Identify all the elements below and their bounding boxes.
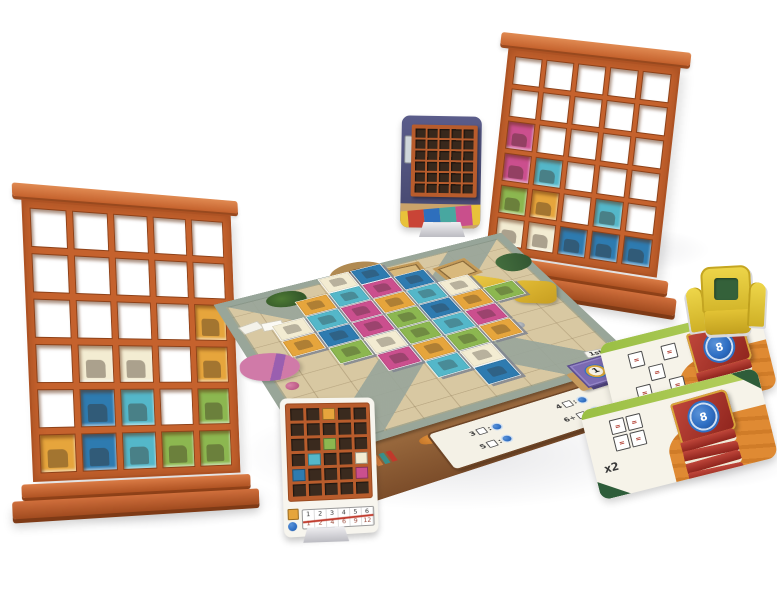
rosette-icon	[491, 423, 503, 430]
shelf-slot	[325, 483, 338, 496]
goal-tile-plants	[355, 467, 368, 479]
shelf-slot	[439, 151, 449, 160]
empty-slot	[34, 300, 70, 338]
tile-cats	[200, 431, 231, 466]
shelf-slot	[439, 140, 449, 149]
rug-stripe	[471, 204, 480, 225]
empty-slot	[510, 89, 538, 119]
scoring-rule: 4:	[554, 396, 588, 410]
shelf-slot	[439, 184, 449, 193]
armchair-arm	[747, 282, 766, 327]
shelf-slot	[306, 408, 319, 420]
matches-value: 4	[338, 508, 350, 518]
shelf-slot	[428, 129, 438, 138]
multiplier-label: x2	[603, 460, 620, 476]
shelf-slot	[427, 162, 437, 171]
shelf-slot	[307, 423, 320, 435]
scoring-rule: 5:	[478, 435, 514, 451]
card-stand	[419, 222, 465, 237]
shelf-slot	[309, 483, 322, 496]
pattern-cell: =	[660, 342, 678, 360]
tile-cats	[198, 389, 229, 424]
tile-plants	[503, 154, 531, 184]
shelf-slot	[464, 129, 474, 138]
empty-slot	[36, 345, 72, 382]
tile-icon	[287, 509, 298, 521]
empty-slot	[155, 261, 188, 297]
shelf-slot	[291, 439, 305, 451]
points-value: 9	[350, 516, 362, 526]
shelf-slot	[340, 467, 353, 479]
shelf-slot	[415, 151, 425, 160]
tile-frames	[82, 434, 117, 471]
shelf-slot	[463, 140, 473, 149]
shelf-slot	[308, 468, 321, 481]
pattern-cell: =	[648, 363, 666, 381]
tile-games	[40, 435, 76, 473]
shelf-slot	[439, 173, 449, 182]
goal-tile-frames	[292, 469, 305, 482]
tile-games	[530, 190, 559, 220]
matches-value: 3	[327, 509, 339, 519]
points-value: 4	[327, 518, 339, 528]
shelf-slot	[324, 468, 337, 480]
tile-cats	[499, 186, 527, 216]
empty-slot	[544, 61, 573, 91]
empty-slot	[160, 389, 192, 424]
shelf-slot	[463, 184, 473, 193]
tile-books	[527, 222, 556, 252]
matches-value: 6	[362, 507, 374, 516]
matches-value: 5	[350, 507, 362, 517]
empty-slot	[513, 57, 541, 86]
points-value: 2	[315, 518, 327, 528]
shelf-slot	[307, 438, 320, 450]
shelf-slot	[451, 173, 461, 182]
shelf-slot	[338, 423, 351, 435]
shelf-slot	[354, 422, 367, 434]
tile-plants	[506, 122, 534, 152]
goal-tile-trophies	[308, 453, 321, 465]
armchair-cushion	[714, 278, 738, 300]
shelf-slot	[340, 482, 353, 494]
tile-trophies	[121, 390, 155, 426]
shelf-grid-right	[496, 57, 671, 267]
shelf-slot	[415, 184, 425, 193]
empty-slot	[192, 220, 224, 256]
tile-trophies	[594, 199, 623, 230]
scoring-rule: 3:	[468, 422, 504, 437]
card-shelf-grid	[411, 124, 478, 197]
empty-slot	[154, 218, 187, 255]
shelf-slot	[452, 129, 462, 138]
empty-slot	[541, 93, 570, 123]
empty-slot	[637, 105, 667, 135]
tile-frames	[590, 232, 619, 263]
personal-goal-card: 1234561246912	[280, 397, 379, 537]
points-value: 12	[362, 516, 374, 526]
empty-slot	[73, 212, 108, 250]
pattern-cell: =	[613, 433, 631, 451]
shelf-slot	[324, 453, 337, 465]
pattern-cell: =	[627, 351, 645, 369]
shelf-slot	[427, 184, 437, 193]
empty-slot	[537, 126, 566, 156]
shelf-slot	[292, 454, 306, 467]
empty-slot	[641, 72, 671, 102]
shelf-slot	[463, 151, 473, 160]
shelf-slot	[291, 424, 305, 436]
tile-frames	[80, 390, 115, 427]
empty-slot	[193, 263, 224, 299]
goal-shelf-grid	[285, 402, 373, 502]
points-value: 1	[303, 519, 315, 529]
goal-tile-books	[355, 452, 368, 464]
empty-slot	[116, 259, 150, 296]
adjacent-count: 6+	[562, 414, 579, 423]
armchair-miniature	[680, 262, 774, 349]
empty-slot	[630, 171, 660, 202]
shelf-slot	[293, 484, 306, 497]
shelf-slot	[339, 437, 352, 449]
yarn-ball-icon	[284, 381, 302, 392]
tile-trophies	[123, 433, 157, 469]
empty-slot	[159, 347, 191, 382]
pattern-cell: =	[625, 413, 643, 431]
tile-cats	[162, 432, 194, 468]
shelf-slot	[463, 162, 473, 171]
empty-slot	[576, 65, 605, 95]
player-bookshelf-left	[21, 183, 242, 518]
shelf-slot	[451, 162, 461, 171]
shelf-slot	[440, 129, 450, 138]
tile-frames	[558, 227, 587, 257]
tile-books	[119, 346, 153, 382]
shelf-slot	[415, 162, 425, 171]
room-scene-card	[400, 115, 482, 228]
empty-slot	[633, 138, 663, 168]
shelf-slot	[427, 173, 437, 182]
shelf-slot	[356, 481, 369, 493]
shelf-slot	[451, 140, 461, 149]
goal-tile-cats	[323, 438, 336, 450]
shelf-slot	[338, 408, 351, 420]
goal-pattern-diagram: ====	[609, 408, 672, 471]
pattern-cell: =	[609, 417, 627, 435]
shelf-slot	[415, 140, 425, 149]
empty-slot	[114, 215, 148, 253]
shelf-slot	[463, 173, 473, 182]
shelf-slot	[415, 173, 425, 182]
shelf-slot	[427, 140, 437, 149]
empty-slot	[626, 204, 656, 235]
shelf-slot	[439, 162, 449, 171]
shelf-slot	[451, 184, 461, 193]
green-corner	[596, 470, 631, 501]
rosette-icon: 8	[689, 402, 719, 432]
empty-slot	[562, 195, 591, 225]
empty-slot	[572, 97, 601, 127]
goal-points-track: 1234561246912	[302, 506, 375, 530]
empty-slot	[31, 209, 67, 248]
shelf-slot	[339, 452, 352, 464]
stage-product-photo: 3:4:5:6+: 1 1st 1234561246912	[0, 0, 777, 600]
rosette-icon	[288, 522, 297, 532]
empty-slot	[608, 68, 638, 98]
tile-books	[79, 346, 114, 382]
empty-slot	[601, 134, 631, 164]
empty-slot	[597, 166, 626, 196]
goal-footer-icons	[287, 509, 299, 532]
shelf-slot	[451, 151, 461, 160]
card-stand	[303, 526, 349, 543]
points-value: 6	[339, 517, 351, 527]
tile-trophies	[534, 158, 563, 188]
pattern-cell: =	[629, 429, 647, 447]
shelf-slot	[416, 129, 426, 138]
tile-games	[197, 347, 228, 381]
shelf-frame	[486, 48, 681, 278]
empty-slot	[38, 390, 74, 427]
empty-slot	[565, 162, 594, 192]
shelf-slot	[353, 407, 366, 419]
empty-slot	[75, 256, 110, 294]
empty-slot	[569, 130, 598, 160]
empty-slot	[118, 302, 152, 338]
empty-slot	[77, 301, 112, 338]
goal-tile-games	[322, 408, 335, 420]
shelf-slot	[354, 437, 367, 449]
empty-slot	[157, 304, 190, 340]
tile-frames	[622, 236, 652, 267]
empty-slot	[32, 254, 68, 292]
shelf-slot	[323, 423, 336, 435]
shelf-slot	[290, 408, 304, 420]
shelf-frame	[21, 199, 240, 482]
empty-slot	[604, 101, 634, 131]
shelf-grid-left	[31, 209, 233, 473]
rosette-icon	[501, 435, 513, 443]
shelf-slot	[427, 151, 437, 160]
armchair-seat	[704, 309, 751, 335]
